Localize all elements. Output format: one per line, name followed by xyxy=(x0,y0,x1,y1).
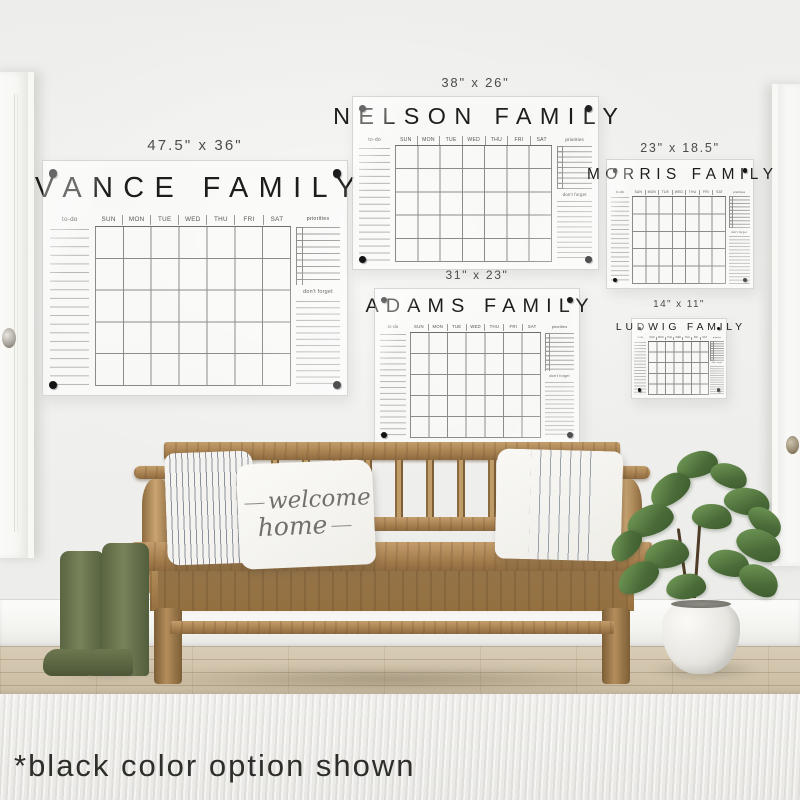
acrylic-board: VANCE FAMILY to-do SUNMONTUEWEDTHUFRISAT… xyxy=(42,160,348,396)
day-label: SUN xyxy=(95,215,122,225)
calendar-grid xyxy=(95,227,290,386)
size-label: 31" x 23" xyxy=(374,269,580,283)
day-label: WED xyxy=(466,324,485,331)
todo-lines xyxy=(359,148,390,262)
acrylic-board: LUDWIG FAMILY to-do SUNMONTUEWEDTHUFRISA… xyxy=(631,318,727,399)
priorities-checkboxes xyxy=(729,196,750,228)
left-door xyxy=(0,72,34,558)
day-label: FRI xyxy=(507,136,530,144)
todo-lines xyxy=(634,342,646,395)
standoff-screw xyxy=(381,297,387,303)
calendar-grid xyxy=(648,342,708,395)
fiddle-leaf-plant xyxy=(598,448,800,688)
priorities-column: priorities don't forget xyxy=(729,190,750,284)
calendar-adams: 31" x 23" ADAMS FAMILY to-do SUNMONTUEWE… xyxy=(374,269,580,445)
standoff-screw xyxy=(359,256,366,263)
dont-forget-label: don't forget xyxy=(545,373,574,379)
todo-lines xyxy=(611,197,630,284)
day-label: TUE xyxy=(439,136,462,144)
family-name-title: ADAMS FAMILY xyxy=(358,295,595,318)
standoff-screw xyxy=(333,169,341,177)
size-label: 23" x 18.5" xyxy=(606,141,754,155)
day-label: SAT xyxy=(522,324,541,331)
welcome-home-pillow: welcome home xyxy=(236,459,376,570)
day-label: FRI xyxy=(691,337,700,341)
door-panel-line xyxy=(14,94,18,532)
standoff-screw xyxy=(567,297,573,303)
entryway-product-photo: 47.5" x 36" VANCE FAMILY to-do SUNMONTUE… xyxy=(0,0,800,800)
priorities-column: priorities don't forget xyxy=(710,337,723,395)
dont-forget-label: don't forget xyxy=(710,362,723,365)
day-label: SUN xyxy=(410,324,428,331)
priorities-column: priorities don't forget xyxy=(545,324,574,437)
priorities-label: priorities xyxy=(729,190,750,195)
priorities-label: priorities xyxy=(557,136,592,143)
size-label: 38" x 26" xyxy=(352,76,599,91)
day-label: SAT xyxy=(712,190,726,195)
calendar-morris: 23" x 18.5" MORRIS FAMILY to-do SUNMONTU… xyxy=(606,141,754,289)
day-label: SAT xyxy=(530,136,553,144)
bench-stretcher xyxy=(170,621,614,634)
left-door-knob xyxy=(2,328,16,348)
day-label: SUN xyxy=(648,337,656,341)
priorities-label: priorities xyxy=(296,215,339,224)
day-label: THU xyxy=(485,136,508,144)
calendar-grid xyxy=(395,146,552,261)
day-label: MON xyxy=(417,136,440,144)
month-grid: SUNMONTUEWEDTHUFRISAT xyxy=(95,215,290,386)
dont-forget-lines xyxy=(729,236,750,284)
pillow-text-home: home xyxy=(257,510,356,542)
standoff-screw xyxy=(49,169,57,177)
standoff-screw xyxy=(638,388,641,391)
todo-label: to-do xyxy=(359,136,390,144)
day-label: FRI xyxy=(699,190,713,195)
day-label: TUE xyxy=(150,215,178,225)
day-label: TUE xyxy=(658,190,672,195)
bench-leg-left xyxy=(154,608,182,684)
month-grid: SUNMONTUEWEDTHUFRISAT xyxy=(410,324,541,437)
day-label: THU xyxy=(206,215,234,225)
day-label: WED xyxy=(673,337,682,341)
dont-forget-label: don't forget xyxy=(557,191,592,198)
day-label: THU xyxy=(484,324,503,331)
day-label: WED xyxy=(462,136,485,144)
striped-rug xyxy=(0,694,800,800)
leaf xyxy=(665,572,707,601)
day-label: SUN xyxy=(632,190,645,195)
standoff-screw xyxy=(359,105,366,112)
day-label: TUE xyxy=(447,324,466,331)
priorities-checkboxes xyxy=(545,333,574,372)
dont-forget-lines xyxy=(545,382,574,438)
standoff-screw xyxy=(743,168,747,172)
day-label: THU xyxy=(685,190,699,195)
size-label: 14" x 11" xyxy=(631,299,727,311)
acrylic-board: MORRIS FAMILY to-do SUNMONTUEWEDTHUFRISA… xyxy=(606,159,754,289)
day-label: MON xyxy=(122,215,150,225)
priorities-checkboxes xyxy=(710,341,723,361)
day-label: SUN xyxy=(395,136,417,144)
day-header-row: SUNMONTUEWEDTHUFRISAT xyxy=(632,190,726,197)
day-header-row: SUNMONTUEWEDTHUFRISAT xyxy=(95,215,290,227)
dont-forget-lines xyxy=(296,301,339,387)
month-grid: SUNMONTUEWEDTHUFRISAT xyxy=(648,337,708,395)
todo-column: to-do xyxy=(50,215,89,386)
dont-forget-lines xyxy=(557,201,592,261)
todo-label: to-do xyxy=(380,324,406,331)
day-label: SAT xyxy=(700,337,709,341)
day-label: SAT xyxy=(263,215,291,225)
month-grid: SUNMONTUEWEDTHUFRISAT xyxy=(395,136,552,261)
day-label: FRI xyxy=(234,215,262,225)
todo-lines xyxy=(50,229,89,386)
day-label: MON xyxy=(656,337,665,341)
family-name-title: MORRIS FAMILY xyxy=(581,166,778,184)
day-header-row: SUNMONTUEWEDTHUFRISAT xyxy=(410,324,541,333)
acrylic-board: ADAMS FAMILY to-do SUNMONTUEWEDTHUFRISAT… xyxy=(374,288,580,445)
todo-lines xyxy=(380,334,406,437)
todo-column: to-do xyxy=(611,190,630,284)
day-header-row: SUNMONTUEWEDTHUFRISAT xyxy=(395,136,552,146)
priorities-label: priorities xyxy=(710,337,723,340)
day-label: MON xyxy=(645,190,659,195)
day-label: TUE xyxy=(665,337,674,341)
rain-boot-right xyxy=(102,543,149,676)
standoff-screw xyxy=(567,432,573,438)
calendar-ludwig: 14" x 11" LUDWIG FAMILY to-do SUNMONTUEW… xyxy=(631,299,727,399)
priorities-label: priorities xyxy=(545,324,574,330)
todo-label: to-do xyxy=(50,215,89,225)
dont-forget-label: don't forget xyxy=(296,288,339,297)
todo-column: to-do xyxy=(380,324,406,437)
calendar-nelson: 38" x 26" NELSON FAMILY to-do SUNMONTUEW… xyxy=(352,76,599,270)
day-label: FRI xyxy=(503,324,522,331)
standoff-screw xyxy=(638,327,641,330)
todo-label: to-do xyxy=(634,337,646,341)
day-label: WED xyxy=(178,215,206,225)
standoff-screw xyxy=(717,327,720,330)
calendar-grid xyxy=(632,197,726,284)
day-label: MON xyxy=(428,324,447,331)
day-label: THU xyxy=(682,337,691,341)
standoff-screw xyxy=(381,432,387,438)
todo-column: to-do xyxy=(634,337,646,395)
standoff-screw xyxy=(585,256,592,263)
calendar-grid xyxy=(410,333,541,438)
family-name-title: LUDWIG FAMILY xyxy=(612,322,746,333)
family-name-title: NELSON FAMILY xyxy=(325,103,627,130)
priorities-column: priorities don't forget xyxy=(296,215,339,386)
month-grid: SUNMONTUEWEDTHUFRISAT xyxy=(632,190,726,284)
standoff-screw xyxy=(585,105,592,112)
acrylic-board: NELSON FAMILY to-do SUNMONTUEWEDTHUFRISA… xyxy=(352,96,599,270)
family-name-title: VANCE FAMILY xyxy=(25,172,366,205)
priorities-column: priorities don't forget xyxy=(557,136,592,261)
size-label: 47.5" x 36" xyxy=(42,137,348,154)
calendar-vance: 47.5" x 36" VANCE FAMILY to-do SUNMONTUE… xyxy=(42,137,348,396)
todo-column: to-do xyxy=(359,136,390,261)
standoff-screw xyxy=(717,388,720,391)
caption-color-option: *black color option shown xyxy=(14,748,416,784)
plant-pot xyxy=(662,598,740,674)
todo-label: to-do xyxy=(611,190,630,195)
bench-under-shadow xyxy=(158,571,626,617)
day-label: WED xyxy=(672,190,686,195)
priorities-checkboxes xyxy=(296,227,339,285)
dont-forget-label: don't forget xyxy=(729,230,750,235)
